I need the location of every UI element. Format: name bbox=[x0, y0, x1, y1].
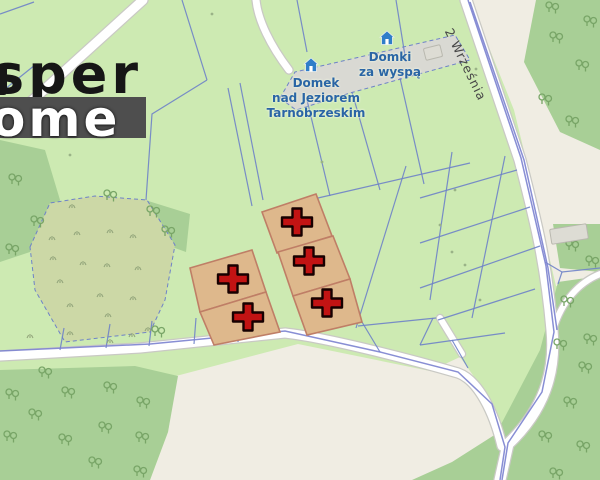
logo-text-bottom: ome bbox=[0, 94, 120, 144]
house-icon[interactable] bbox=[379, 30, 395, 46]
parcel-dot bbox=[439, 224, 442, 227]
poi-label-domek[interactable]: Domek nad Jeziorem Tarnobrzeskim bbox=[246, 76, 386, 121]
parcel-dot bbox=[464, 264, 467, 267]
parcel-dot bbox=[321, 161, 324, 164]
poi-label-line: Domki bbox=[320, 50, 460, 65]
forest-bottomleft bbox=[0, 366, 178, 480]
poi-label-domki[interactable]: Domki za wyspą bbox=[320, 50, 460, 80]
poi-label-line: nad Jeziorem bbox=[246, 91, 386, 106]
parcel-dot bbox=[69, 154, 72, 157]
poi-label-line: za wyspą bbox=[320, 65, 460, 80]
parcel-dot bbox=[451, 251, 454, 254]
map-viewport[interactable]: Domek nad Jeziorem Tarnobrzeskim Domki z… bbox=[0, 0, 600, 480]
parcel-dot bbox=[211, 13, 214, 16]
house-icon[interactable] bbox=[303, 57, 319, 73]
parcel-dot bbox=[479, 299, 482, 302]
poi-label-line: Tarnobrzeskim bbox=[246, 106, 386, 121]
parcel-dot bbox=[454, 189, 457, 192]
